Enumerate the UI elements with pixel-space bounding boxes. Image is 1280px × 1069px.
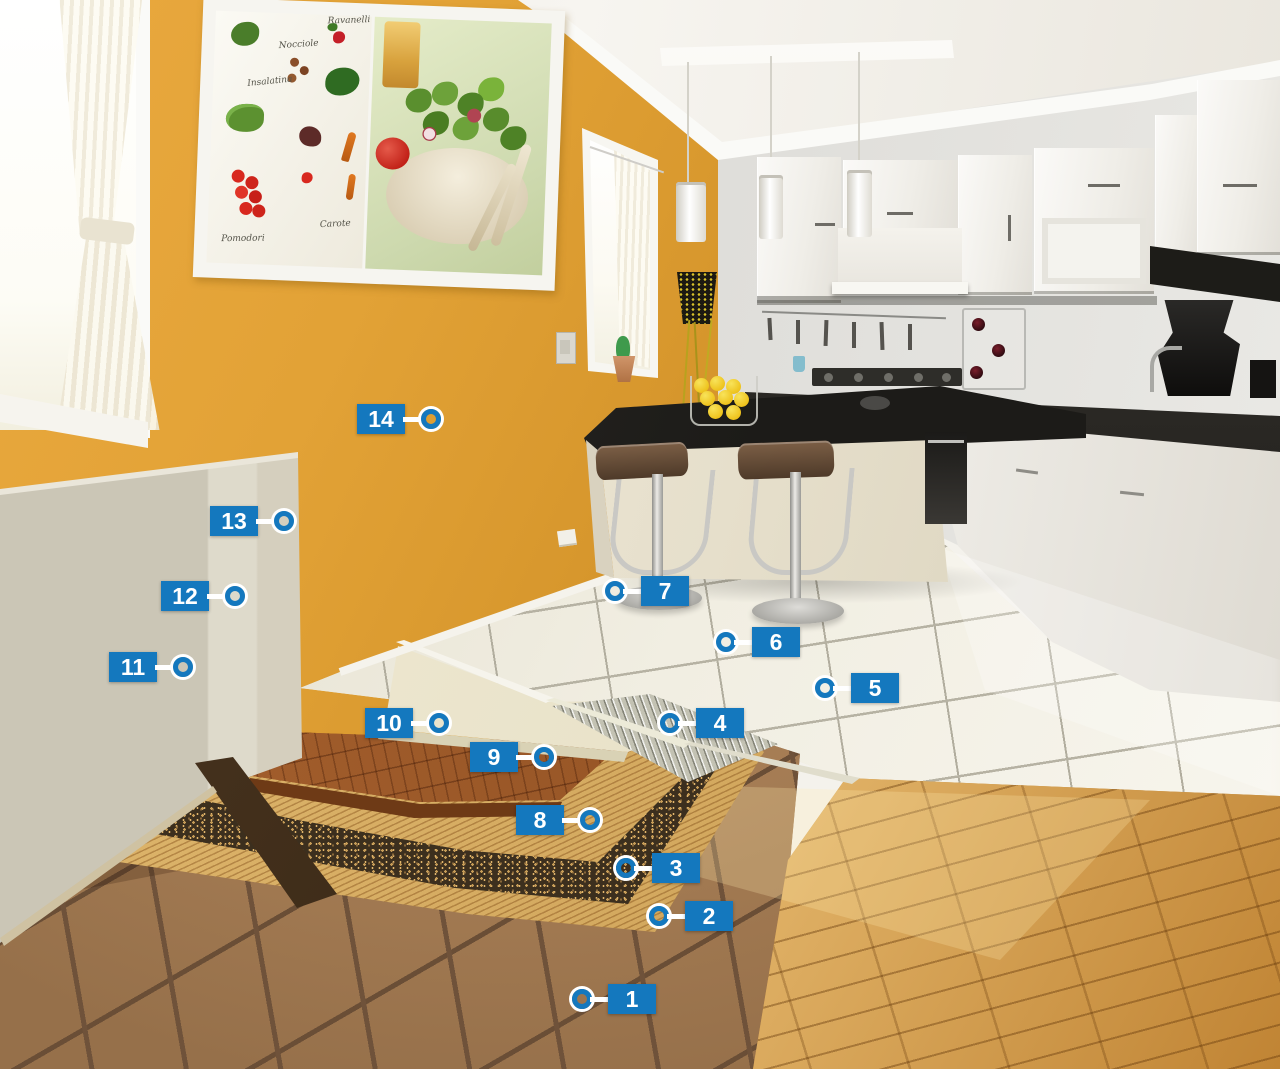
pendant-light (676, 182, 706, 242)
small-bowl (860, 396, 890, 410)
callout-8[interactable]: 8 (516, 805, 600, 835)
callout-label[interactable]: 8 (516, 805, 564, 835)
callout-9[interactable]: 9 (470, 742, 554, 772)
stool-seat[interactable] (737, 440, 834, 479)
corner-upper-cabinet (1197, 80, 1280, 255)
lettuce-illustration (225, 103, 264, 132)
picture-salad-panel (365, 17, 552, 276)
callout-line (833, 686, 853, 691)
lemon (710, 376, 725, 391)
parsley-illustration (231, 21, 260, 46)
stool-base (752, 598, 844, 624)
cabinet-handle[interactable] (887, 212, 913, 215)
kale-illustration (325, 67, 360, 96)
tomato-cluster-illustration (231, 169, 244, 182)
callout-dot (173, 657, 193, 677)
callout-1[interactable]: 1 (572, 984, 656, 1014)
wine-rack (962, 308, 1026, 390)
back-window-curtain (614, 150, 650, 368)
wine-bottle (972, 318, 985, 331)
callout-line (734, 640, 754, 645)
lemon (708, 404, 723, 419)
range-hood-shelf (832, 282, 968, 294)
picture-word-insalatina: Insalatina (247, 75, 293, 90)
callout-6[interactable]: 6 (716, 627, 800, 657)
picture-left-panel: Ravanelli Nocciole Insalatina Pomodori C… (206, 11, 372, 269)
carrot-illustration (341, 131, 357, 162)
callout-label[interactable]: 6 (752, 627, 800, 657)
salad-leaves (405, 88, 432, 113)
callout-label[interactable]: 10 (365, 708, 413, 738)
cabinet-row-shadow (757, 296, 1157, 305)
callout-label[interactable]: 3 (652, 853, 700, 883)
salad-radish-slices (422, 127, 437, 142)
callout-label[interactable]: 4 (696, 708, 744, 738)
callout-dot (274, 511, 294, 531)
hanging-utensil (796, 320, 800, 344)
radish-illustration (333, 31, 345, 43)
pendant-cord (687, 62, 689, 184)
wall-picture: Ravanelli Nocciole Insalatina Pomodori C… (193, 0, 565, 291)
cabinet-handle[interactable] (1223, 184, 1257, 187)
lemon (718, 390, 733, 405)
callout-label[interactable]: 11 (109, 652, 157, 682)
blue-glass (793, 356, 805, 372)
callout-10[interactable]: 10 (365, 708, 449, 738)
callout-dot (815, 678, 835, 698)
lift-door-panel[interactable] (1042, 218, 1146, 284)
wine-bottle (992, 344, 1005, 357)
callout-dot (534, 747, 554, 767)
callout-line (207, 594, 227, 599)
callout-line (678, 721, 698, 726)
callout-5[interactable]: 5 (815, 673, 899, 703)
callout-dot (429, 713, 449, 733)
pendant-cord (858, 52, 860, 172)
callout-line (590, 997, 610, 1002)
burner (824, 373, 833, 382)
corner-upper-cabinet (1155, 115, 1199, 267)
callout-3[interactable]: 3 (616, 853, 700, 883)
callout-line (256, 519, 276, 524)
callout-dot (660, 713, 680, 733)
callout-7[interactable]: 7 (605, 576, 689, 606)
picture-word-carote: Carote (320, 219, 351, 230)
hanging-utensil (852, 322, 856, 348)
callout-line (516, 755, 536, 760)
callout-dot (605, 581, 625, 601)
callout-dot (580, 810, 600, 830)
callout-dot (716, 632, 736, 652)
callout-dot (421, 409, 441, 429)
pendant-light (759, 175, 783, 239)
upper-cabinet (958, 155, 1032, 295)
callout-dot (572, 989, 592, 1009)
picture-word-nocciole: Nocciole (278, 39, 318, 52)
callout-label[interactable]: 7 (641, 576, 689, 606)
light-switch[interactable] (556, 332, 576, 364)
stool-seat[interactable] (595, 442, 689, 481)
callout-13[interactable]: 13 (210, 506, 294, 536)
callout-line (562, 818, 582, 823)
callout-line (411, 721, 431, 726)
callout-14[interactable]: 14 (357, 404, 441, 434)
beet-leaf-illustration (299, 126, 322, 147)
wine-bottle (970, 366, 983, 379)
callout-2[interactable]: 2 (649, 901, 733, 931)
callout-line (403, 417, 423, 422)
callout-line (667, 914, 687, 919)
callout-dot (649, 906, 669, 926)
callout-label[interactable]: 1 (608, 984, 656, 1014)
callout-12[interactable]: 12 (161, 581, 245, 611)
cabinet-handle[interactable] (1008, 215, 1011, 241)
callout-label[interactable]: 13 (210, 506, 258, 536)
oil-glass (382, 21, 421, 88)
lemon (726, 405, 741, 420)
lemon-basket (690, 376, 758, 426)
hanging-utensil (908, 324, 912, 350)
callout-dot (616, 858, 636, 878)
callout-label[interactable]: 9 (470, 742, 518, 772)
callout-label[interactable]: 5 (851, 673, 899, 703)
kitchen-floor-system-illustration: Ravanelli Nocciole Insalatina Pomodori C… (0, 0, 1280, 1069)
callout-line (634, 866, 654, 871)
pendant-light (847, 170, 872, 237)
oven-handle[interactable] (928, 440, 964, 443)
callout-dot (225, 586, 245, 606)
cooktop (812, 368, 962, 386)
callout-line (623, 589, 643, 594)
faucet (1150, 346, 1182, 392)
small-appliance (1250, 360, 1276, 398)
built-in-oven (925, 432, 967, 524)
chili-illustration (301, 172, 312, 183)
picture-word-pomodori: Pomodori (221, 234, 265, 245)
left-window (0, 0, 152, 455)
stool-pole (790, 472, 801, 608)
callout-label[interactable]: 14 (357, 404, 405, 434)
upper-cabinet (1034, 148, 1154, 294)
callout-11[interactable]: 11 (109, 652, 193, 682)
wall-outlet (557, 529, 577, 547)
cabinet-handle[interactable] (1088, 184, 1120, 187)
switch-button[interactable] (560, 340, 570, 354)
hazelnut-illustration (290, 58, 299, 67)
callout-4[interactable]: 4 (660, 708, 744, 738)
carrot-illustration-2 (346, 174, 357, 201)
callout-label[interactable]: 12 (161, 581, 209, 611)
cabinet-handle[interactable] (815, 223, 835, 226)
callout-line (155, 665, 175, 670)
picture-word-ravanelli: Ravanelli (328, 15, 371, 26)
callout-label[interactable]: 2 (685, 901, 733, 931)
